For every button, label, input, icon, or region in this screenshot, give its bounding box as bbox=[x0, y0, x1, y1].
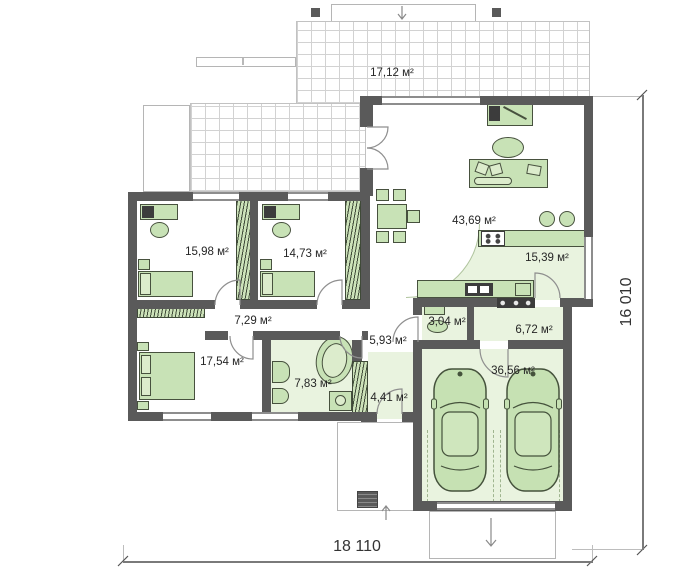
room-label-bedroom-2: 14,73 м² bbox=[283, 248, 327, 260]
room-label-wc: 3,04 м² bbox=[428, 316, 465, 328]
room-label-garage: 36,56 м² bbox=[491, 365, 535, 377]
door-arc bbox=[367, 148, 388, 169]
door-arc bbox=[340, 336, 362, 358]
door-arc bbox=[317, 280, 342, 305]
room-label-bathroom: 7,83 м² bbox=[294, 378, 331, 390]
room-label-kitchen: 15,39 м² bbox=[525, 252, 569, 264]
porch-step-arrow bbox=[382, 506, 390, 520]
dimension-width-label: 18 110 bbox=[333, 538, 381, 556]
dimension-line-right bbox=[642, 95, 644, 550]
floor-plan: 17,12 м² 15,98 м² 14,73 м² 43,69 м² 15,3… bbox=[0, 0, 700, 575]
door-arc bbox=[535, 273, 560, 298]
step-arrow-down bbox=[398, 6, 406, 19]
room-label-hall: 5,93 м² bbox=[369, 335, 406, 347]
room-label-terrace: 17,12 м² bbox=[370, 67, 414, 79]
room-label-bedroom-1: 15,98 м² bbox=[185, 246, 229, 258]
room-label-hallway: 7,29 м² bbox=[234, 315, 271, 327]
room-label-closet: 4,41 м² bbox=[370, 392, 407, 404]
room-label-utility: 6,72 м² bbox=[515, 324, 552, 336]
driveway-arrow bbox=[486, 518, 496, 546]
room-label-bedroom-3: 17,54 м² bbox=[200, 356, 244, 368]
dimension-line-bottom bbox=[123, 561, 593, 563]
door-arc bbox=[215, 280, 240, 305]
room-label-living: 43,69 м² bbox=[452, 215, 496, 227]
door-swing-overlay bbox=[0, 0, 700, 575]
dimension-height-label: 16 010 bbox=[618, 278, 636, 327]
door-arc bbox=[367, 127, 388, 148]
